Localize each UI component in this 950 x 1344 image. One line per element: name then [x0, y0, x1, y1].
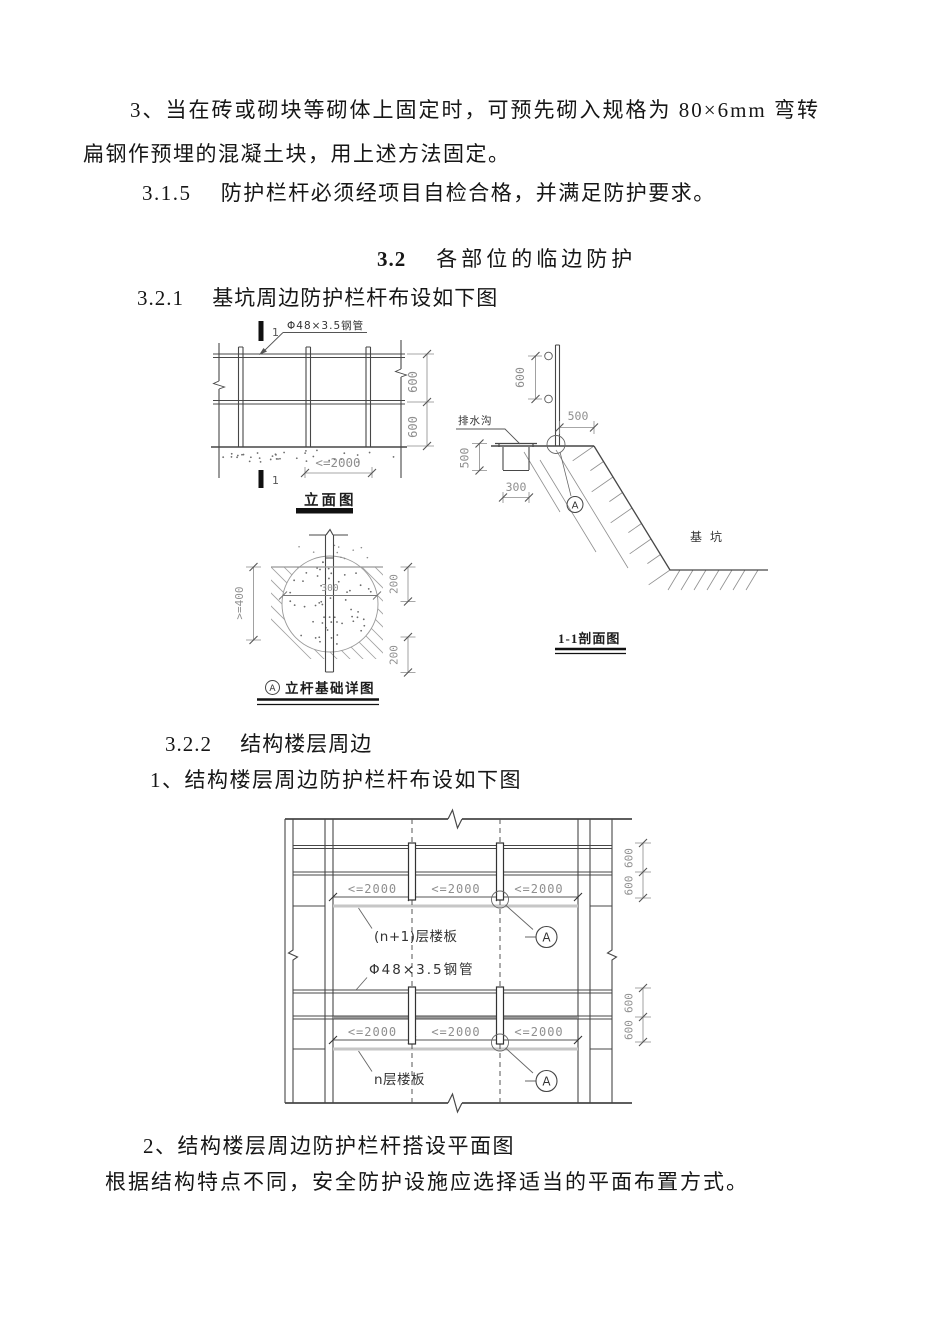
dim-200-upper: 200 [388, 574, 401, 594]
dim-200-lower: 200 [388, 645, 401, 665]
drain-callout: 排水沟 [456, 414, 520, 444]
pit-label: 基坑 [690, 529, 730, 544]
dim-600: 600 [623, 1020, 636, 1040]
dim-500-horizontal: 500 [568, 409, 589, 423]
pit-bottom-hatch [668, 570, 758, 590]
dim-2000: <=2000 [514, 882, 563, 896]
section-heading-3-2: 3.2各部位的临边防护 [377, 243, 636, 273]
elevation-view [211, 340, 407, 478]
dim-500-vertical: 500 [458, 448, 472, 469]
dim-2000: <=2000 [431, 882, 480, 896]
upper-slab-callout: (n+1)层楼板 [359, 908, 458, 945]
section-dimensions [472, 352, 598, 503]
lower-slab-label: n层楼板 [374, 1072, 425, 1088]
pipe-label: Φ48×3.5钢管 [287, 319, 364, 332]
dim-ge400: >=400 [233, 586, 246, 619]
dim-600-section: 600 [513, 367, 527, 388]
detail-ref-a: A [542, 1075, 551, 1089]
upper-slab-label: (n+1)层楼板 [374, 929, 458, 945]
dim-2000: <=2000 [348, 1025, 397, 1039]
paragraph-last: 根据结构特点不同，安全防护设施应选择适当的平面布置方式。 [105, 1166, 749, 1196]
list-item-1: 1、结构楼层周边防护栏杆布设如下图 [150, 764, 522, 794]
detail-caption: A 立杆基础详图 [257, 680, 379, 705]
clause-3-2-1: 3.2.1 基坑周边防护栏杆布设如下图 [137, 282, 498, 312]
detail-ref-a: A [542, 931, 551, 945]
detail-ref-a: A [572, 501, 579, 512]
dim-2000: <=2000 [431, 1025, 480, 1039]
ground-stipple [222, 449, 394, 462]
section-caption: 1-1剖面图 [555, 631, 626, 654]
dim-spacing-2000: <=2000 [315, 455, 360, 470]
pipe-label: Φ48×3.5钢管 [369, 962, 475, 978]
dim-300-ditch: 300 [506, 480, 527, 494]
section-mark-label: 1 [272, 474, 279, 487]
structure-lines [285, 810, 632, 1112]
list-item-2: 2、结构楼层周边防护栏杆搭设平面图 [143, 1130, 515, 1160]
dim-600: 600 [623, 993, 636, 1013]
dim-300-ball: 300 [321, 583, 338, 594]
clause-3-1-5: 3.1.5 防护栏杆必须经项目自检合格，并满足防护要求。 [142, 177, 716, 207]
section-title: 1-1剖面图 [558, 631, 620, 646]
slope-hatch [524, 446, 670, 585]
clause-3-2-2: 3.2.2 结构楼层周边 [165, 728, 372, 758]
detail-title: 立杆基础详图 [285, 680, 375, 696]
section-title: 各部位的临边防护 [436, 247, 636, 271]
paragraph-line: 扁钢作预埋的混凝土块，用上述方法固定。 [83, 138, 511, 168]
detail-ref-a: A [269, 684, 276, 694]
section-number: 3.2 [377, 247, 406, 271]
elevation-caption: 立面图 [296, 491, 357, 514]
paragraph-line: 3、当在砖或砌块等砌体上固定时，可预先砌入规格为 80×6mm 弯转 [130, 94, 820, 124]
dim-600: 600 [623, 848, 636, 868]
detail-ref-callouts: A A [506, 905, 558, 1092]
lower-slab-callout: n层楼板 [359, 1051, 426, 1088]
dim-600: 600 [623, 876, 636, 896]
dim-600-upper: 600 [406, 371, 420, 393]
dim-2000: <=2000 [514, 1025, 563, 1039]
pipe-callout: Φ48×3.5钢管 [356, 962, 475, 990]
height-dimensions [635, 839, 651, 1046]
elevation-title: 立面图 [304, 491, 357, 509]
diagram-pit-guardrail: 600 600 <=2000 1 1 Φ48×3.5钢管 立面图 [0, 310, 950, 715]
drain-label: 排水沟 [458, 414, 493, 427]
diagram-floor-guardrail: <=2000 <=2000 <=2000 <=2000 <=2000 <=200… [0, 800, 950, 1130]
concrete-ball [282, 556, 378, 652]
document-page: 3、当在砖或砌块等砌体上固定时，可预先砌入规格为 80×6mm 弯转 扁钢作预埋… [0, 0, 950, 1344]
guardrail-posts [409, 819, 509, 1103]
dim-600-lower: 600 [406, 416, 420, 438]
dim-2000: <=2000 [348, 882, 397, 896]
